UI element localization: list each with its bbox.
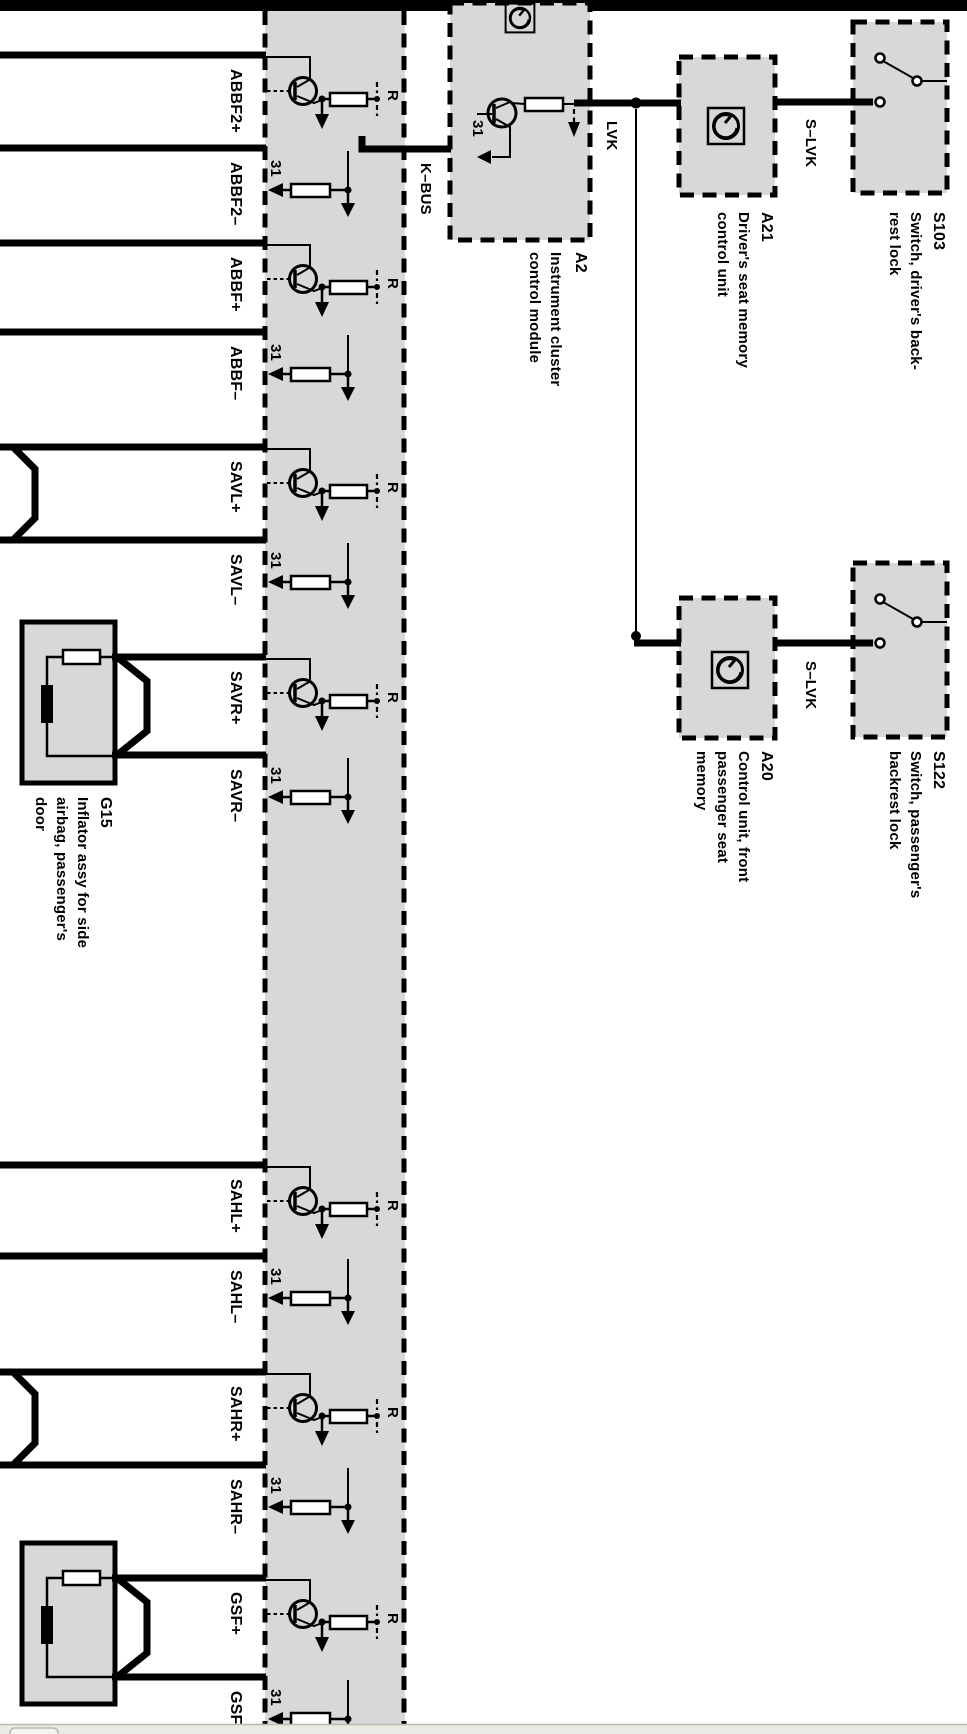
- a2-desc-1: Instrument cluster: [547, 252, 564, 386]
- a2-ground-terminal-label: 31: [469, 120, 486, 137]
- s-lvk-passenger-label: S–LVK: [802, 661, 819, 709]
- a2-desc-2: control module: [526, 252, 543, 363]
- s-lvk-driver-label: S–LVK: [802, 119, 819, 167]
- s103-desc-2: rest lock: [886, 212, 903, 276]
- a20-desc-3: memory: [693, 751, 710, 811]
- twisted-pair-bracket-sahr: [13, 1372, 35, 1465]
- g15-desc-1: Inflator assy for side: [74, 797, 91, 948]
- a2-label: A2 Instrument cluster control module: [526, 252, 589, 386]
- a2-id: A2: [572, 252, 589, 273]
- s122-id: S122: [930, 751, 947, 789]
- s122-desc-2: backrest lock: [886, 751, 903, 850]
- lvk-junction-dot: [631, 98, 642, 109]
- a21-id: A21: [758, 212, 775, 242]
- s103-label: S103 Switch, driver's back- rest lock: [886, 212, 947, 370]
- s103-id: S103: [930, 212, 947, 250]
- g15-id: G15: [97, 797, 114, 828]
- g15-desc-2: airbag, passenger's: [53, 797, 70, 941]
- s103-desc-1: Switch, driver's back-: [907, 212, 924, 370]
- s103-box: [853, 22, 947, 193]
- pin-label-sahr-minus: SAHR–: [227, 1479, 244, 1534]
- s122-label: S122 Switch, passenger's backrest lock: [886, 751, 947, 898]
- a21-box: [679, 57, 775, 195]
- a21-desc-1: Driver's seat memory: [735, 212, 752, 368]
- twisted-pair-bracket-savl: [13, 447, 35, 540]
- g15-inflator-box: [22, 622, 115, 783]
- pin-label-savr-plus: SAVR+: [227, 671, 244, 725]
- wiring-diagram: R 31: [0, 0, 967, 1734]
- lvk-label: LVK: [603, 121, 620, 151]
- inflator-box-bottom: [22, 1543, 115, 1704]
- window-resize-handle: [10, 1728, 58, 1734]
- pin-label-sahl-plus: SAHL+: [227, 1179, 244, 1233]
- s122-box: [853, 563, 947, 737]
- a20-desc-2: passenger seat: [714, 751, 731, 863]
- twisted-pair-bracket-savr: [117, 657, 147, 755]
- g15-desc-3: door: [32, 797, 49, 831]
- pin-labels: ABBF2+ ABBF2– ABBF+ ABBF– SAVL+ SAVL– SA…: [227, 69, 244, 1734]
- airbag-control-module-column: [265, 11, 405, 1734]
- pin-label-savl-minus: SAVL–: [227, 554, 244, 605]
- a21-desc-2: control unit: [714, 212, 731, 297]
- a20-desc-1: Control unit, front: [735, 751, 752, 882]
- twisted-pair-bracket-gsf: [117, 1578, 147, 1677]
- pin-label-sahr-plus: SAHR+: [227, 1386, 244, 1442]
- pin-label-sahl-minus: SAHL–: [227, 1270, 244, 1323]
- pin-label-abbf2-plus: ABBF2+: [227, 69, 244, 133]
- a20-id: A20: [758, 751, 775, 781]
- s122-desc-1: Switch, passenger's: [907, 751, 924, 898]
- a20-box: [679, 598, 775, 738]
- window-bottom-strip: [0, 1724, 967, 1734]
- g15-label: G15 Inflator assy for side airbag, passe…: [32, 797, 114, 948]
- pin-label-abbf2-minus: ABBF2–: [227, 162, 244, 225]
- pin-label-abbf-minus: ABBF–: [227, 346, 244, 400]
- pin-label-gsf-plus: GSF+: [227, 1592, 244, 1635]
- pin-label-savl-plus: SAVL+: [227, 461, 244, 513]
- wiring-diagram-page: R 31: [0, 0, 967, 1734]
- pin-label-abbf-plus: ABBF+: [227, 257, 244, 312]
- a20-label: A20 Control unit, front passenger seat m…: [693, 751, 775, 882]
- a21-label: A21 Driver's seat memory control unit: [714, 212, 775, 368]
- k-bus-label: K–BUS: [417, 163, 434, 215]
- pin-label-savr-minus: SAVR–: [227, 769, 244, 822]
